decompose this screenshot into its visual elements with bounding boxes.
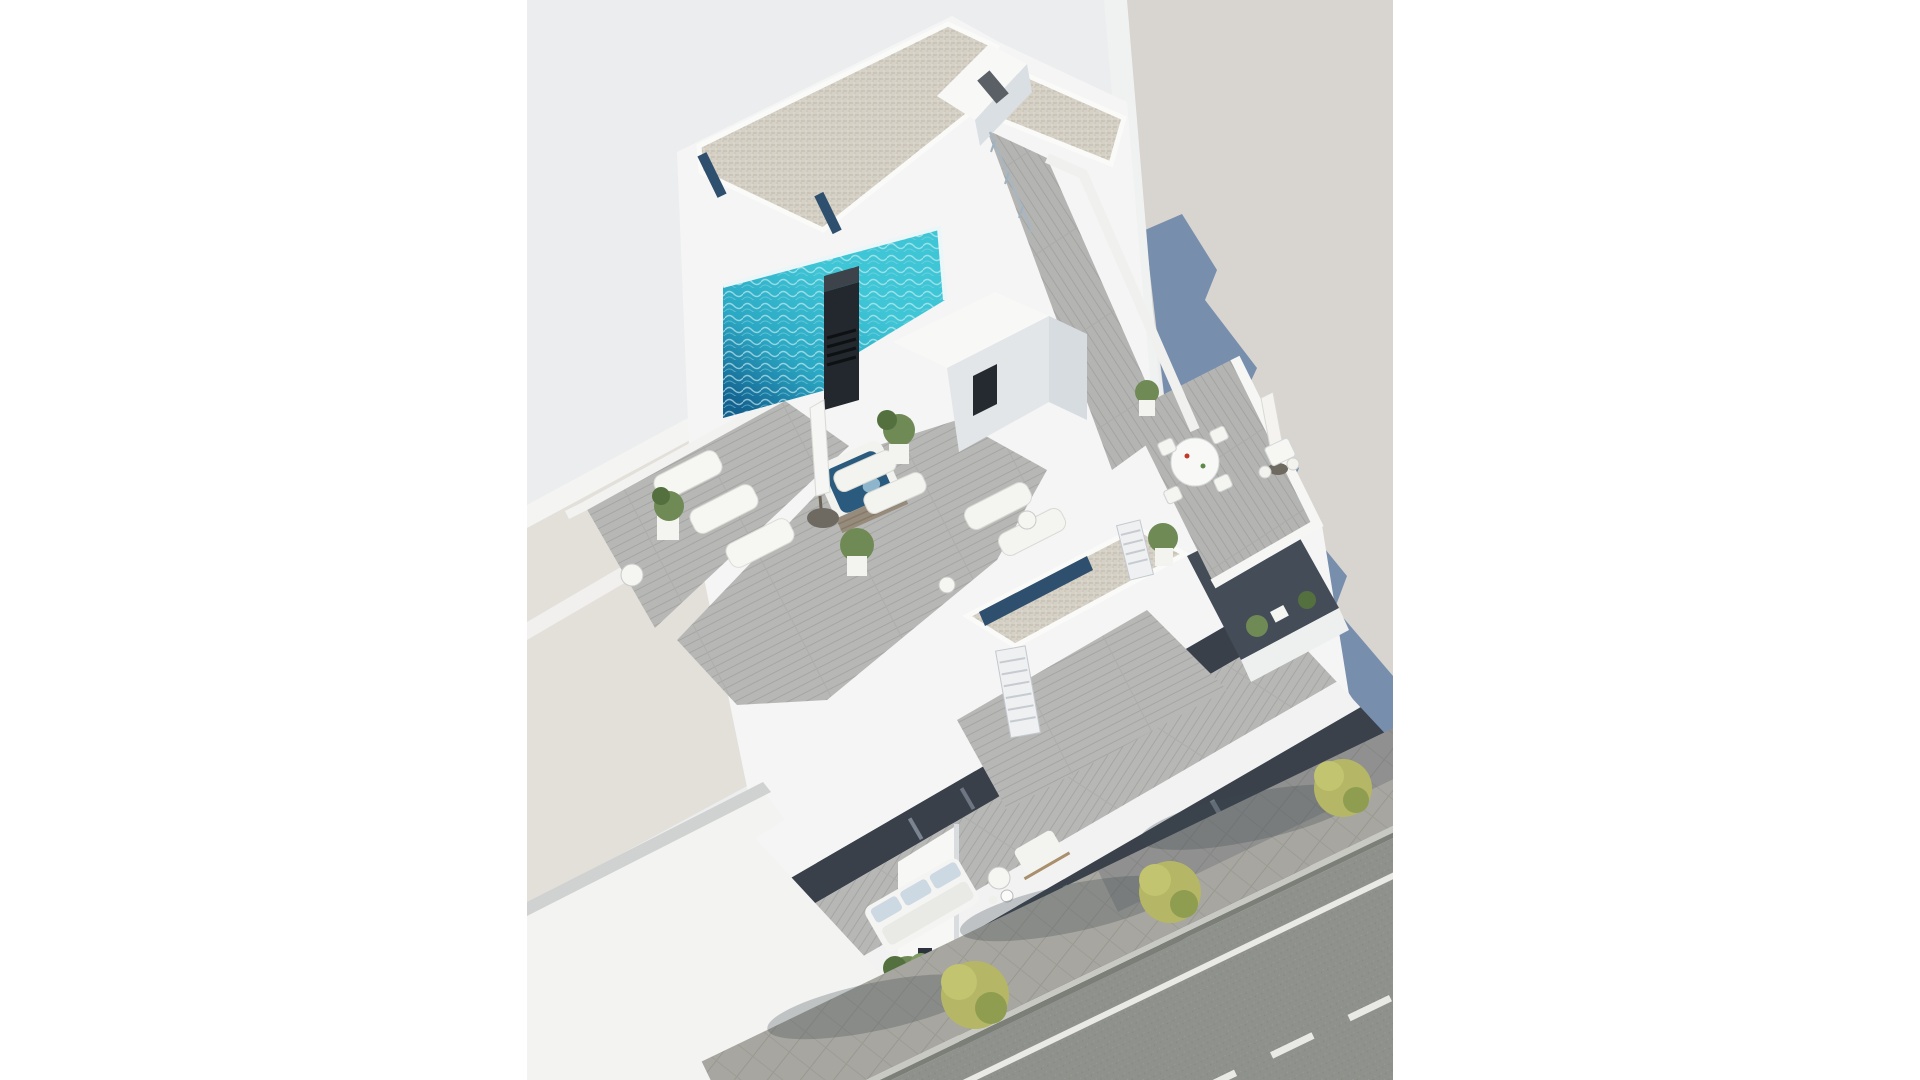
table-decor bbox=[1201, 464, 1206, 469]
balcony-plant bbox=[1246, 615, 1268, 637]
tree-foliage bbox=[1343, 787, 1369, 813]
bar-stool bbox=[1287, 458, 1299, 470]
dining-table bbox=[1171, 438, 1219, 486]
render-scene bbox=[527, 0, 1393, 1080]
bar-stool bbox=[1259, 466, 1271, 478]
room-side-volume bbox=[1049, 316, 1087, 420]
plant-pot bbox=[889, 444, 909, 464]
parasol-base bbox=[807, 508, 839, 528]
side-table bbox=[621, 564, 643, 586]
tree-foliage bbox=[1139, 864, 1171, 896]
architectural-render-image bbox=[527, 0, 1393, 1080]
street-tree bbox=[941, 961, 1009, 1029]
plant-pot bbox=[847, 556, 867, 576]
side-table bbox=[1018, 511, 1036, 529]
balcony-plant bbox=[1298, 591, 1316, 609]
table-decor bbox=[1185, 454, 1190, 459]
vase bbox=[989, 896, 997, 904]
plant-foliage bbox=[652, 487, 670, 505]
tree-foliage bbox=[975, 992, 1007, 1024]
plant-foliage bbox=[877, 410, 897, 430]
tree-foliage bbox=[1170, 890, 1198, 918]
plant-pot bbox=[1139, 400, 1155, 416]
street-tree bbox=[1139, 861, 1201, 923]
tree-foliage bbox=[1314, 761, 1344, 791]
tree-foliage bbox=[941, 964, 977, 1000]
street-tree bbox=[1314, 759, 1372, 817]
side-table bbox=[988, 867, 1010, 889]
plant-pot bbox=[1155, 548, 1173, 566]
side-table bbox=[939, 577, 955, 593]
page-canvas bbox=[0, 0, 1920, 1080]
